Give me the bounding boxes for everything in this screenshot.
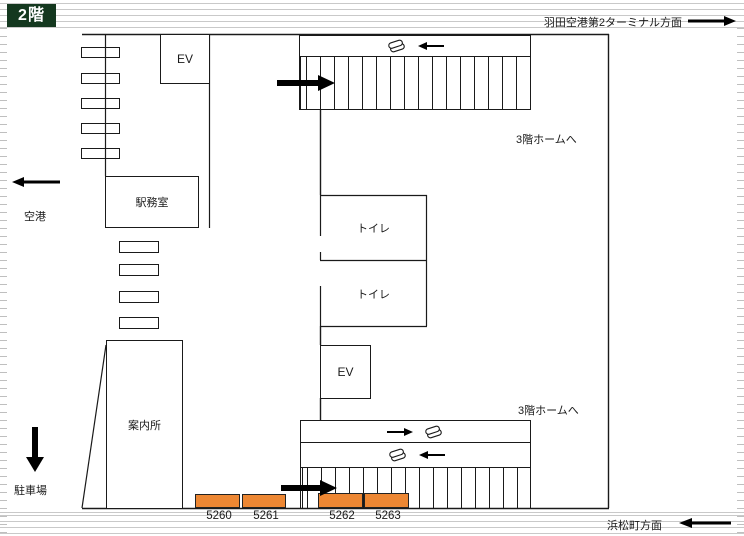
arrow-left-icon (12, 177, 60, 187)
gate-booth (81, 148, 120, 159)
gate-number: 5262 (318, 510, 366, 522)
arrow-left-icon (418, 42, 444, 50)
arrow-down-icon (26, 427, 44, 473)
direction-parking-label: 駐車場 (14, 482, 47, 498)
arrow-right-thick-icon (281, 480, 337, 496)
direction-haneda-label: 羽田空港第2ターミナル方面 (500, 14, 682, 30)
arrow-left-icon (679, 518, 731, 528)
gate-number: 5263 (364, 510, 412, 522)
arrow-right-icon (688, 16, 736, 26)
gate-marker-5261 (242, 494, 286, 508)
gate-marker-5260 (195, 494, 240, 508)
elevator-upper: EV (160, 34, 210, 84)
gate-booth (119, 264, 159, 276)
gate-booth (81, 98, 120, 109)
gate-booth (119, 241, 159, 253)
gate-number: 5260 (195, 510, 243, 522)
toilet-upper-label: トイレ (320, 220, 427, 236)
gate-booth (119, 291, 159, 303)
gate-number: 5261 (242, 510, 290, 522)
arrow-right-thick-icon (277, 75, 335, 91)
arrow-right-icon (387, 428, 413, 436)
escalator-lower-down (300, 442, 531, 468)
arrow-left-icon (419, 451, 445, 459)
gate-booth (81, 47, 120, 58)
information-desk: 案内所 (106, 340, 183, 509)
gate-booth (119, 317, 159, 329)
floor-badge: 2階 (7, 4, 56, 27)
escalator-icon (387, 447, 409, 463)
station-office-label: 駅務室 (136, 194, 169, 210)
escalator-icon (423, 424, 445, 440)
gate-booth (81, 123, 120, 134)
escalator-lower-up (300, 420, 531, 443)
escalator-upper (299, 35, 531, 57)
gate-marker-5263 (364, 493, 409, 508)
direction-airport-label: 空港 (24, 208, 46, 224)
station-floor-map: 2階 EV 駅務室 案内所 EV トイレ トイレ (0, 0, 744, 536)
toilet-lower-label: トイレ (320, 286, 427, 302)
to-3f-note-upper: 3階ホームへ (516, 131, 577, 147)
escalator-icon (386, 38, 408, 54)
information-desk-label: 案内所 (128, 417, 161, 433)
station-office: 駅務室 (105, 176, 199, 228)
to-3f-note-lower: 3階ホームへ (518, 402, 579, 418)
elevator-upper-label: EV (177, 52, 193, 66)
elevator-lower-label: EV (337, 365, 353, 379)
direction-hamamatsucho-label: 浜松町方面 (607, 517, 662, 533)
gate-booth (81, 73, 120, 84)
elevator-lower: EV (320, 345, 371, 399)
